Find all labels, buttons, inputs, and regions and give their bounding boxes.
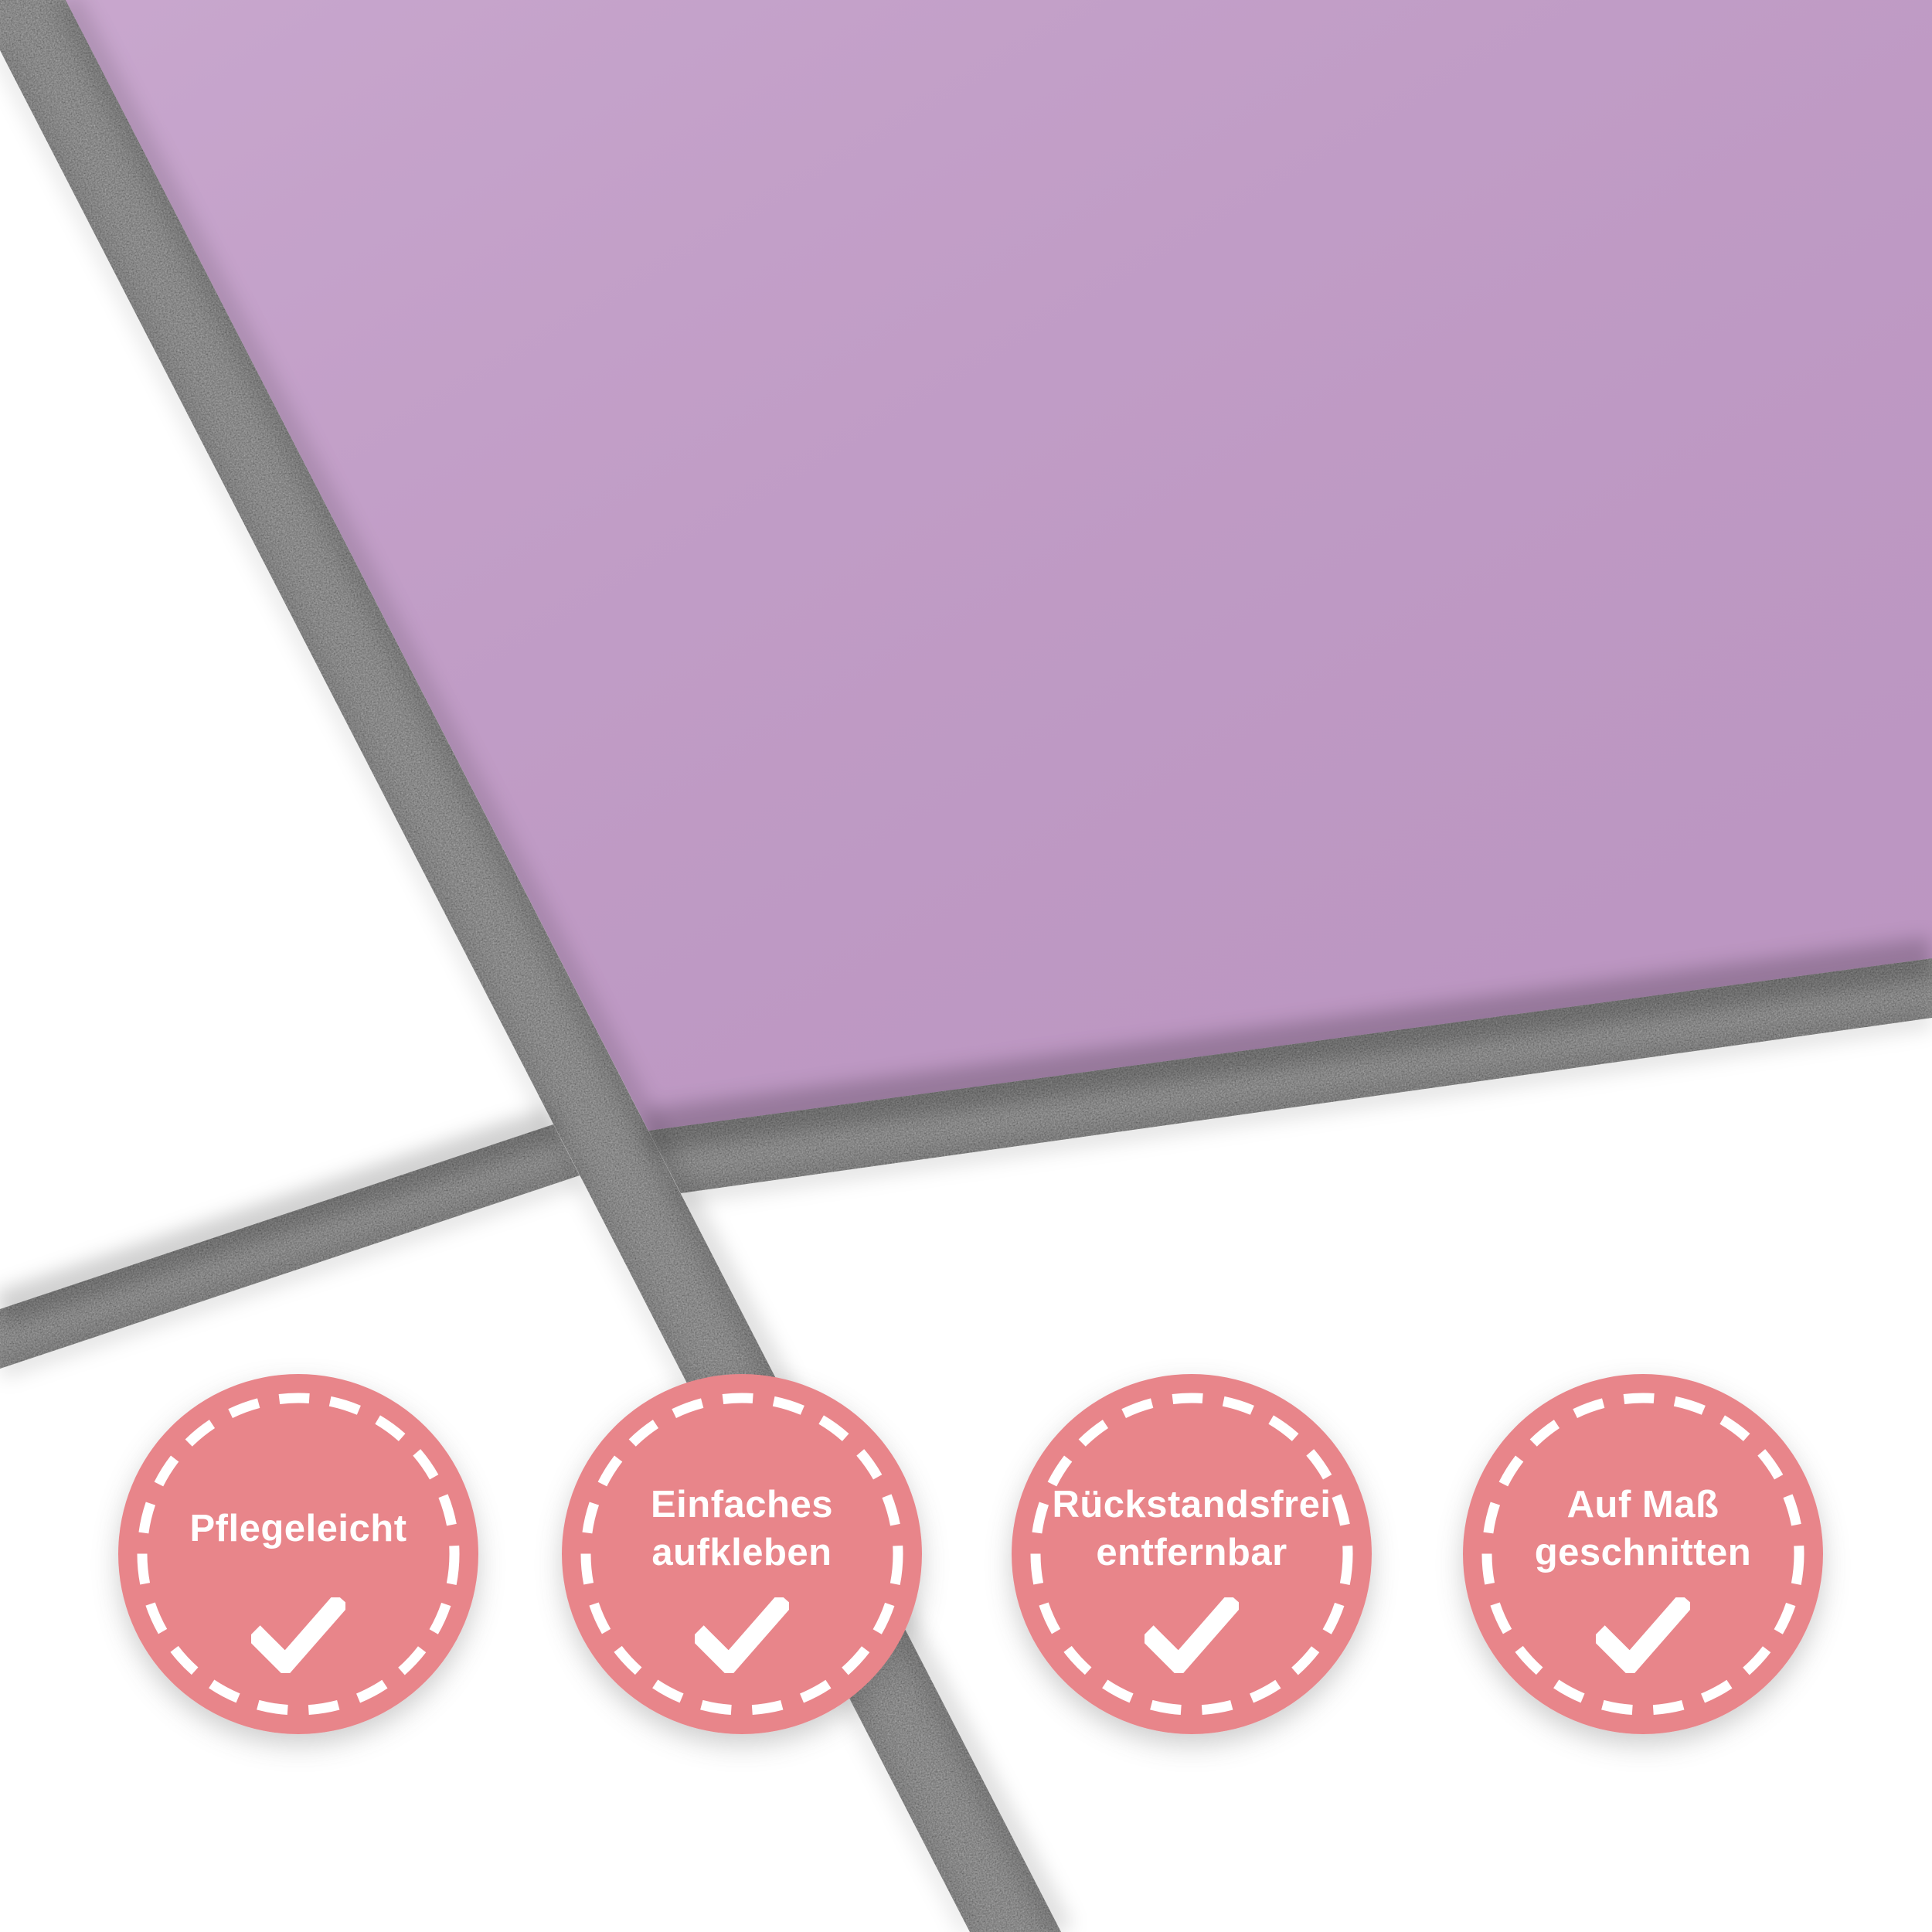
checkmark-icon xyxy=(1463,1597,1823,1673)
checkmark-icon xyxy=(118,1597,478,1673)
badge-label-line: Einfaches xyxy=(651,1481,833,1529)
badge-label-line: geschnitten xyxy=(1535,1529,1751,1577)
feature-badge-pflegeleicht: Pflegeleicht xyxy=(118,1374,478,1734)
badge-label-line: Pflegeleicht xyxy=(189,1505,406,1553)
badge-label: Rückstandsfrei entfernbar xyxy=(1040,1446,1342,1611)
checkmark-icon xyxy=(1012,1597,1372,1673)
product-feature-image: Pflegeleicht Einfaches aufkleben xyxy=(0,0,1932,1932)
badge-label: Pflegeleicht xyxy=(147,1446,449,1611)
badge-label: Einfaches aufkleben xyxy=(590,1446,893,1611)
feature-badge-auf-mass-geschnitten: Auf Maß geschnitten xyxy=(1463,1374,1823,1734)
badge-label-line: Rückstandsfrei xyxy=(1052,1481,1331,1529)
checkmark-icon xyxy=(562,1597,922,1673)
badge-label: Auf Maß geschnitten xyxy=(1492,1446,1794,1611)
feature-badge-rueckstandsfrei-entfernbar: Rückstandsfrei entfernbar xyxy=(1012,1374,1372,1734)
badge-label-line: aufkleben xyxy=(651,1529,832,1577)
badge-label-line: Auf Maß xyxy=(1567,1481,1719,1529)
feature-badge-einfaches-aufkleben: Einfaches aufkleben xyxy=(562,1374,922,1734)
badge-label-line: entfernbar xyxy=(1096,1529,1287,1577)
